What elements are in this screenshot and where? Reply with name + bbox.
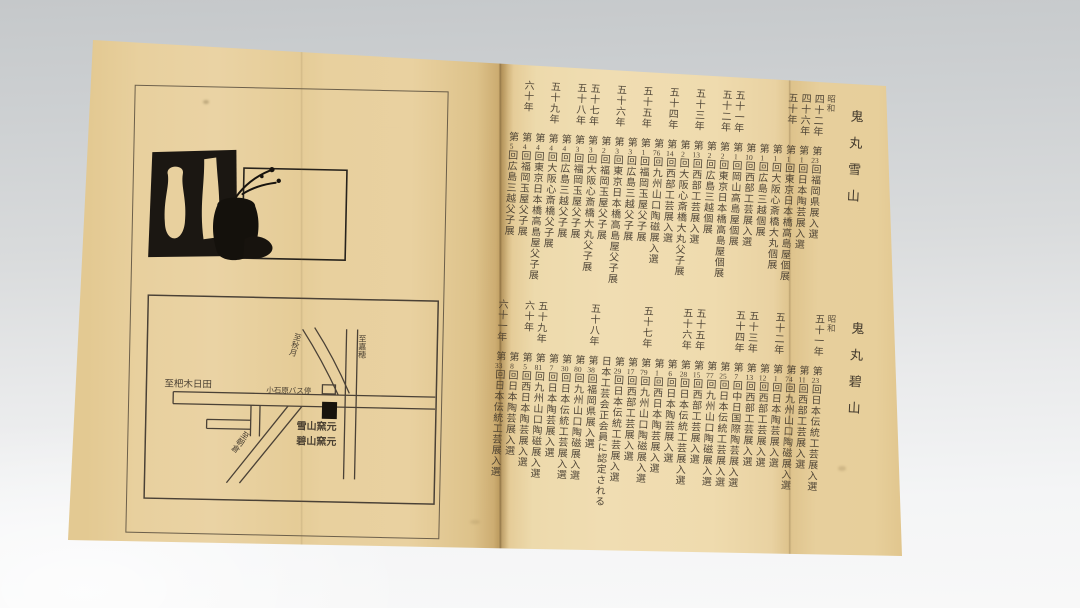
left-page-frame: 至杷木日田 小石原バス停 至秋月 至嘉穂 至朝倉 雪山窯元 碧山窯元	[125, 85, 448, 539]
year-label: 六十年	[520, 300, 535, 333]
year-label: 五十一年	[730, 90, 745, 134]
year-label: 四十二年	[809, 93, 824, 137]
bus-stop-label: 小石原バス停	[266, 385, 312, 396]
year-label: 五十四年	[731, 310, 746, 354]
pottery-artwork-illustration	[146, 144, 354, 286]
location-map: 至杷木日田 小石原バス停 至秋月 至嘉穂 至朝倉 雪山窯元 碧山窯元	[143, 294, 439, 505]
map-border	[144, 295, 438, 504]
year-label: 五十二年	[770, 312, 785, 356]
artist-header-column: 鬼丸碧山	[838, 313, 866, 546]
road-diagonal-edge2	[239, 405, 302, 484]
branch-stroke	[235, 170, 276, 199]
year-label: 五十九年	[546, 81, 561, 125]
year-label: 四十六年	[796, 93, 811, 137]
history-section-onimaru-setsuzan: 鬼丸雪山 昭和 四十二年第23回福岡県展入選四十六年第1回日本陶芸展入選五十年第…	[489, 69, 866, 318]
year-label: 六十年	[520, 80, 535, 113]
year-label: 六十一年	[493, 299, 508, 343]
road-branch-spur	[207, 419, 251, 429]
year-label: 五十六年	[612, 84, 627, 128]
kiln-label-setsuzan: 雪山窯元	[296, 419, 336, 433]
road-curve-inner	[313, 328, 350, 394]
history-section-onimaru-hekizan: 鬼丸碧山 昭和 五十一年第23回日本伝統工芸展入選第11回西部工芸展入選第74回…	[483, 296, 866, 545]
leaf-dot	[277, 179, 281, 183]
road-main-bottom-edge	[173, 404, 435, 409]
year-label: 五十六年	[678, 307, 693, 351]
road-label-diagonal: 至朝倉	[229, 430, 251, 456]
era-label: 昭和	[824, 314, 838, 333]
paper-stain	[470, 520, 480, 524]
year-label: 五十八年	[572, 82, 587, 126]
artist-header-column: 鬼丸雪山	[838, 85, 866, 318]
road-vertical-left-edge	[344, 329, 347, 479]
year-label: 五十二年	[717, 89, 732, 133]
year-label: 五十一年	[810, 313, 825, 357]
year-label: 五十七年	[638, 305, 653, 349]
year-label: 五十年	[783, 92, 798, 125]
road-label-right: 至嘉穂	[358, 334, 368, 359]
year-label: 五十八年	[586, 303, 601, 347]
era-label: 昭和	[824, 94, 838, 113]
kiln-label-hekizan: 碧山窯元	[295, 434, 336, 448]
road-label-curve: 至秋月	[288, 332, 303, 359]
year-label: 五十四年	[664, 87, 679, 131]
year-label: 五十五年	[638, 85, 653, 129]
artist-name: 鬼丸碧山	[845, 321, 865, 428]
ink-blob	[243, 236, 273, 259]
year-label: 五十九年	[533, 300, 548, 344]
road-branch-vertical	[250, 405, 260, 436]
kiln-building-marker	[322, 402, 337, 419]
year-label: 五十五年	[691, 308, 706, 352]
year-label: 五十三年	[744, 310, 759, 354]
year-label: 五十七年	[585, 83, 600, 127]
artist-name: 鬼丸雪山	[844, 109, 864, 216]
road-label-left: 至杷木日田	[164, 377, 212, 390]
year-label: 五十三年	[691, 88, 706, 132]
